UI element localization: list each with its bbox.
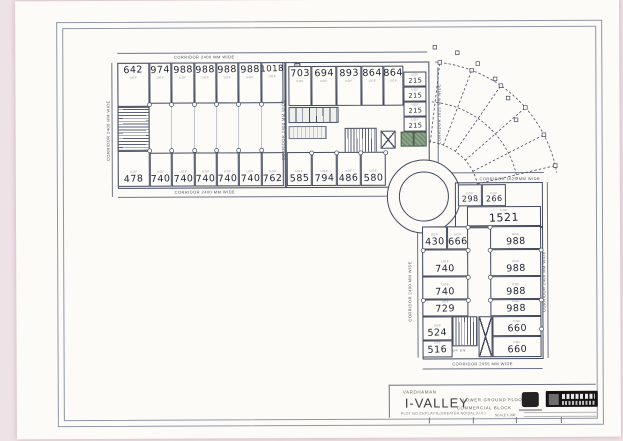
border-tick bbox=[561, 417, 562, 423]
corridor-label-vertical: CORRIDOR 1625 MM WIDE bbox=[436, 84, 441, 144]
unit-area: 988 bbox=[195, 65, 215, 75]
border-tick bbox=[429, 418, 430, 424]
floor-plan: CORRIDOR 2400 MM WIDE CORRIDOR 2400 MM W… bbox=[0, 0, 623, 441]
unit-cell: 988UGF bbox=[238, 62, 261, 103]
unit-area: 703 bbox=[290, 69, 310, 79]
toilet-fixtures bbox=[289, 126, 327, 139]
unit-cell: 740UGF bbox=[195, 152, 217, 186]
unit-area: 988 bbox=[217, 65, 237, 75]
unit-area: 524 bbox=[427, 328, 447, 338]
unit-area: 298 bbox=[461, 195, 478, 204]
unit-area: 516 bbox=[428, 345, 448, 355]
unit-cell: 740UGF bbox=[172, 153, 195, 187]
unit-area: 740 bbox=[151, 174, 171, 184]
firm-name: VARDHAMAN bbox=[403, 389, 437, 394]
unit-cell: 703UGF bbox=[288, 66, 311, 106]
unit-area: 694 bbox=[314, 69, 334, 79]
unit-area: 666 bbox=[448, 237, 468, 247]
unit-cell: 988UGF bbox=[490, 226, 541, 249]
unit-area: 740 bbox=[218, 174, 238, 184]
unit-tag: UGF bbox=[269, 74, 277, 78]
developer-logo bbox=[522, 392, 539, 407]
unit-cell: 974UGF bbox=[149, 63, 171, 104]
unit-tag: UGF bbox=[202, 75, 210, 79]
banner-text-row bbox=[562, 394, 595, 399]
unit-cell: 864UGF bbox=[361, 66, 383, 106]
unit-cell: 694UGF bbox=[311, 66, 336, 106]
unit-cell: 740UGF bbox=[422, 249, 468, 276]
unit-cell: 486UGF bbox=[337, 152, 361, 186]
unit-cell: 430UGF bbox=[422, 226, 447, 249]
unit-area: 988 bbox=[173, 65, 193, 75]
unit-area: 1018 bbox=[260, 65, 284, 74]
unit-cell: 516UGF bbox=[423, 340, 453, 357]
unit-cell: 660UGF bbox=[492, 316, 541, 336]
title-divider bbox=[389, 385, 390, 418]
unit-area: 762 bbox=[263, 173, 283, 183]
unit-area: 740 bbox=[240, 173, 260, 183]
unit-area: 864 bbox=[362, 68, 382, 78]
unit-cell: 988UGF bbox=[490, 276, 541, 299]
unit-area: 585 bbox=[289, 173, 309, 183]
corridor-label-vertical: CORRIDOR 2400 MM WIDE bbox=[407, 262, 412, 322]
unit-tag: UGF bbox=[390, 78, 398, 82]
unit-cell: 988UGF bbox=[194, 62, 216, 103]
unit-cell: 794UGF bbox=[312, 152, 337, 186]
unit-cell: 215UGF bbox=[403, 87, 426, 102]
unit-cell: 524UGF bbox=[422, 316, 452, 340]
unit-area: 580 bbox=[363, 173, 383, 183]
scale-label: SCALE 1:200 bbox=[495, 413, 516, 417]
developer-logo-caption bbox=[519, 409, 542, 411]
unit-area: 642 bbox=[123, 65, 143, 75]
unit-area: 430 bbox=[425, 237, 445, 247]
unit-cell: 215UGF bbox=[403, 102, 426, 117]
staircase-left bbox=[118, 107, 150, 151]
atrium-circle-inner bbox=[399, 171, 449, 221]
unit-cell: 988UGF bbox=[216, 62, 238, 103]
stair-direction-label: UP DN bbox=[453, 348, 467, 352]
corridor-label: CORRIDOR 1625 MM WIDE bbox=[470, 176, 550, 181]
lift-car bbox=[414, 132, 427, 147]
corridor-label: CORRIDOR 2055 MM WIDE bbox=[433, 361, 533, 366]
banner-mark bbox=[549, 393, 559, 404]
block-label: COMMERCIAL BLOCK bbox=[457, 405, 512, 410]
unit-cell: 478UGF bbox=[118, 151, 150, 187]
drawing-paper: CORRIDOR 2400 MM WIDE CORRIDOR 2400 MM W… bbox=[15, 0, 621, 439]
unit-area: 988 bbox=[506, 263, 526, 273]
unit-tag: UGF bbox=[369, 78, 377, 82]
unit-cell: 298UGF bbox=[458, 184, 482, 206]
unit-cell: 215UGF bbox=[403, 72, 426, 87]
unit-cell: 642UGF bbox=[117, 63, 149, 107]
unit-cell: 988UGF bbox=[490, 249, 541, 276]
unit-cell: 266UGF bbox=[482, 184, 506, 206]
unit-cell: 988UGF bbox=[490, 299, 541, 316]
unit-area: 486 bbox=[339, 173, 359, 183]
scanned-sheet: CORRIDOR 2400 MM WIDE CORRIDOR 2400 MM W… bbox=[0, 0, 623, 440]
unit-area: 864 bbox=[383, 68, 403, 78]
unit-cell: 740UGF bbox=[239, 152, 262, 186]
unit-area: 215 bbox=[408, 92, 422, 99]
unit-area: 974 bbox=[150, 65, 170, 75]
border-tick bbox=[516, 417, 517, 423]
lift-car bbox=[401, 132, 414, 147]
unit-area: 266 bbox=[485, 195, 502, 204]
unit-area: 988 bbox=[506, 303, 526, 313]
unit-area: 729 bbox=[435, 304, 455, 314]
unit-cell: 580UGF bbox=[361, 152, 386, 186]
unit-area: 988 bbox=[506, 286, 526, 296]
unit-area: 660 bbox=[507, 344, 527, 354]
unit-tag: UGF bbox=[130, 75, 138, 79]
unit-cell: 1521UGF bbox=[467, 206, 541, 226]
architect-logo-banner bbox=[546, 391, 598, 407]
unit-cell: 893UGF bbox=[336, 66, 361, 106]
banner-text-row bbox=[562, 401, 595, 405]
unit-area: 740 bbox=[196, 174, 216, 184]
unit-area: 215 bbox=[408, 122, 422, 129]
floor-label: LOWER GROUND FLOOR bbox=[463, 397, 526, 402]
unit-area: 740 bbox=[435, 264, 455, 274]
unit-cell: 988UGF bbox=[171, 63, 194, 104]
corridor-label: CORRIDOR 2400 MM WIDE bbox=[139, 54, 269, 60]
staircase-middle bbox=[345, 128, 377, 154]
unit-cell: 666UGF bbox=[447, 226, 468, 249]
unit-cell: 660UGF bbox=[493, 336, 542, 357]
unit-area: 215 bbox=[408, 77, 422, 84]
unit-area: 478 bbox=[124, 174, 144, 184]
unit-area: 893 bbox=[339, 68, 359, 78]
unit-cell: 215UGF bbox=[404, 117, 427, 132]
staircase-right bbox=[452, 316, 477, 346]
unit-cell: 740UGF bbox=[422, 276, 468, 299]
lift-shaft bbox=[381, 131, 396, 149]
corridor-label-vertical: CORRIDOR 2400 MM WIDE bbox=[105, 96, 110, 166]
lift-shaft bbox=[478, 316, 492, 357]
unit-cell: 864UGF bbox=[383, 66, 403, 106]
unit-cell: 740UGF bbox=[217, 152, 239, 186]
corridor-label: CORRIDOR 2400 MM WIDE bbox=[140, 189, 270, 195]
unit-cell: 585UGF bbox=[287, 152, 312, 186]
unit-area: 215 bbox=[408, 107, 422, 114]
unit-area: 740 bbox=[435, 287, 455, 297]
unit-area: 988 bbox=[240, 65, 260, 75]
unit-area: 1521 bbox=[489, 212, 519, 224]
unit-area: 794 bbox=[314, 173, 334, 183]
unit-cell: 740UGF bbox=[150, 153, 172, 187]
unit-cell: 729UGF bbox=[422, 299, 468, 316]
unit-area: 660 bbox=[507, 323, 527, 333]
unit-area: 740 bbox=[173, 174, 193, 184]
unit-tag: UGF bbox=[224, 75, 232, 79]
toilet-block bbox=[289, 107, 339, 123]
unit-tag: UGF bbox=[157, 75, 165, 79]
plot-address: PLOT NO.25(P),AY-8,(GREATER NOIDA),(U.P.… bbox=[401, 411, 486, 415]
border-tick bbox=[473, 417, 474, 423]
unit-area: 988 bbox=[506, 236, 526, 246]
